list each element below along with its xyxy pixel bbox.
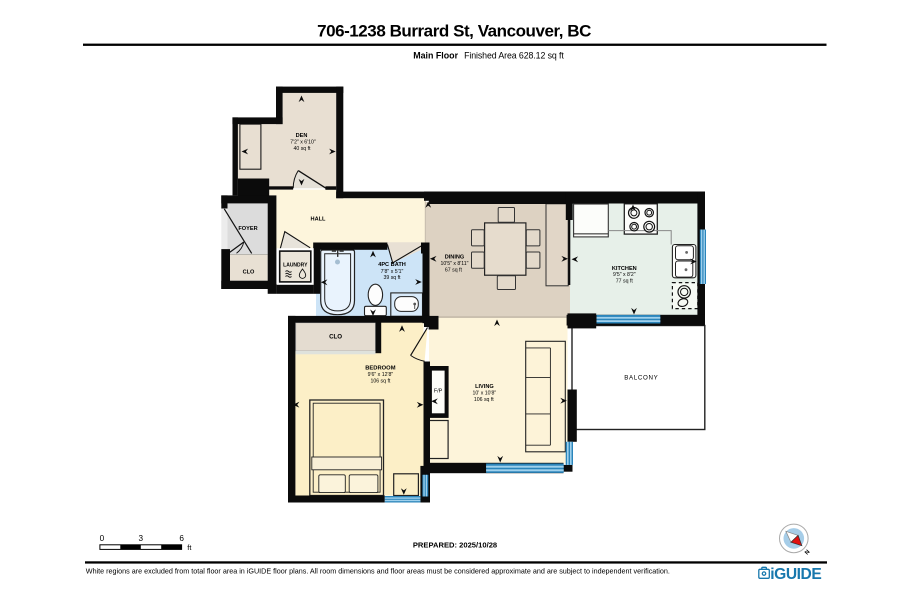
- svg-text:40 sq ft: 40 sq ft: [293, 146, 311, 152]
- svg-text:9'5" x 8'2": 9'5" x 8'2": [613, 272, 636, 278]
- svg-text:PREPARED: 2025/10/28: PREPARED: 2025/10/28: [413, 541, 497, 550]
- svg-text:CLO: CLO: [243, 270, 255, 276]
- svg-text:HALL: HALL: [311, 216, 326, 222]
- svg-text:CLO: CLO: [329, 334, 342, 341]
- svg-text:9'6" x 12'8": 9'6" x 12'8": [368, 372, 394, 378]
- svg-text:0: 0: [100, 534, 105, 543]
- svg-text:iGUIDE: iGUIDE: [770, 566, 821, 583]
- svg-text:706-1238 Burrard St, Vancouver: 706-1238 Burrard St, Vancouver, BC: [317, 21, 591, 40]
- svg-text:10' x 10'8": 10' x 10'8": [473, 390, 497, 396]
- svg-text:Finished Area 628.12 sq ft: Finished Area 628.12 sq ft: [464, 50, 564, 60]
- svg-text:BALCONY: BALCONY: [624, 374, 658, 381]
- svg-text:DEN: DEN: [296, 133, 308, 139]
- svg-text:F/P: F/P: [434, 388, 443, 394]
- svg-text:3: 3: [139, 534, 144, 543]
- svg-text:DINING: DINING: [445, 255, 465, 261]
- svg-text:4PC BATH: 4PC BATH: [378, 262, 406, 268]
- svg-text:7'2" x 6'10": 7'2" x 6'10": [290, 140, 316, 146]
- svg-text:106 sq ft: 106 sq ft: [474, 397, 494, 403]
- svg-text:ft: ft: [187, 543, 191, 552]
- svg-text:Main Floor: Main Floor: [413, 50, 458, 60]
- svg-text:FOYER: FOYER: [238, 226, 257, 232]
- svg-text:LAUNDRY: LAUNDRY: [283, 263, 308, 269]
- svg-text:White regions are excluded fro: White regions are excluded from total fl…: [86, 567, 670, 576]
- svg-text:39 sq ft: 39 sq ft: [383, 275, 401, 281]
- svg-text:67 sq ft: 67 sq ft: [445, 268, 463, 274]
- svg-text:LIVING: LIVING: [475, 384, 494, 390]
- svg-text:10'5" x 8'11": 10'5" x 8'11": [440, 261, 468, 267]
- svg-text:106 sq ft: 106 sq ft: [370, 378, 390, 384]
- svg-text:77 sq ft: 77 sq ft: [616, 278, 634, 284]
- svg-text:6: 6: [179, 534, 184, 543]
- svg-text:BEDROOM: BEDROOM: [365, 365, 395, 371]
- svg-text:7'8" x 5'1": 7'8" x 5'1": [381, 269, 404, 275]
